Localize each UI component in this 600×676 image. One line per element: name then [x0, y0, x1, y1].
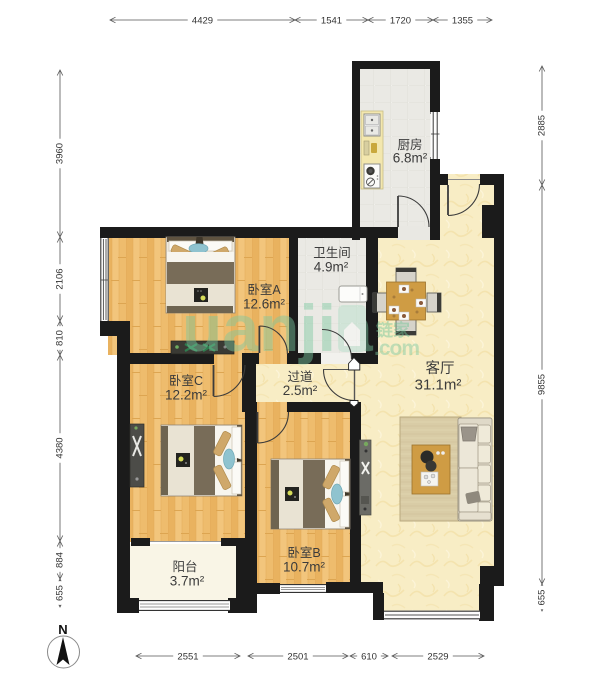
svg-text:.com: .com: [374, 337, 419, 360]
svg-text:3960: 3960: [55, 143, 66, 164]
svg-text:客厅: 客厅: [426, 360, 455, 377]
svg-text:12.2m²: 12.2m²: [165, 388, 208, 403]
svg-text:1355: 1355: [452, 15, 473, 26]
svg-text:6.8m²: 6.8m²: [393, 151, 428, 166]
svg-text:2529: 2529: [427, 651, 448, 662]
svg-text:1541: 1541: [321, 15, 342, 26]
svg-text:610: 610: [361, 651, 377, 662]
svg-text:2.5m²: 2.5m²: [283, 383, 318, 398]
svg-text:4380: 4380: [55, 437, 66, 458]
svg-text:655: 655: [55, 585, 66, 601]
svg-text:9855: 9855: [537, 374, 548, 395]
svg-text:阳台: 阳台: [172, 559, 197, 574]
svg-text:2106: 2106: [55, 268, 66, 289]
svg-text:4.9m²: 4.9m²: [314, 260, 349, 275]
svg-text:10.7m²: 10.7m²: [283, 560, 326, 575]
svg-text:3.7m²: 3.7m²: [170, 574, 205, 589]
svg-text:12.6m²: 12.6m²: [243, 297, 286, 312]
svg-text:655: 655: [537, 590, 548, 606]
svg-text:2551: 2551: [177, 651, 198, 662]
svg-text:卧室B: 卧室B: [287, 545, 320, 560]
svg-text:2501: 2501: [287, 651, 308, 662]
svg-text:31.1m²: 31.1m²: [415, 377, 462, 394]
svg-text:2885: 2885: [537, 115, 548, 136]
svg-text:过道: 过道: [287, 370, 313, 384]
svg-text:4429: 4429: [192, 15, 213, 26]
svg-text:N: N: [58, 622, 67, 637]
svg-text:884: 884: [55, 552, 66, 568]
svg-text:卫生间: 卫生间: [313, 246, 351, 260]
svg-text:卧室C: 卧室C: [169, 373, 203, 388]
svg-text:1720: 1720: [390, 15, 411, 26]
svg-text:810: 810: [55, 330, 66, 346]
svg-text:卧室A: 卧室A: [247, 282, 281, 297]
